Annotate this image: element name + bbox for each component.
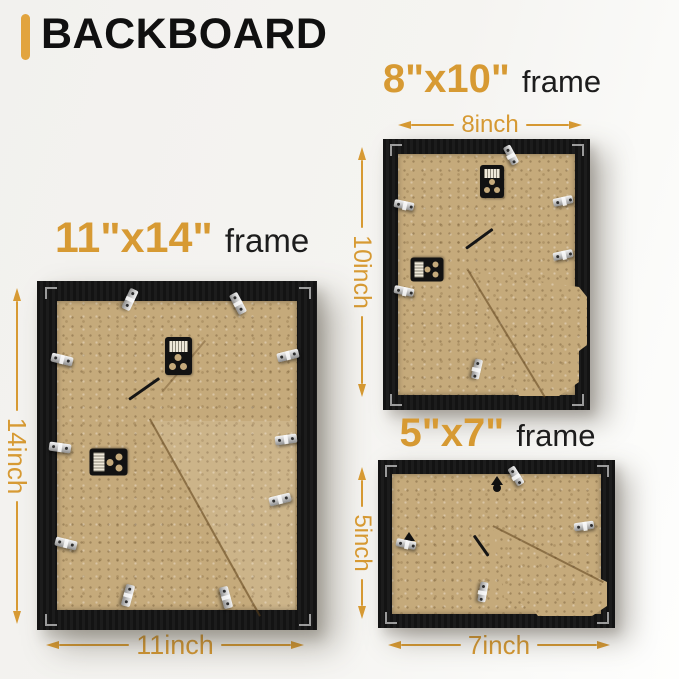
arrowhead-down-icon xyxy=(13,611,21,624)
arrowhead-right-icon xyxy=(291,641,304,649)
sawtooth-hanger-icon xyxy=(411,258,444,282)
arrowhead-left-icon xyxy=(46,641,59,649)
arrowhead-up-icon xyxy=(13,288,21,301)
dimension-width-8x10: 8inch xyxy=(398,111,582,139)
sawtooth-hanger-icon xyxy=(90,449,128,476)
arrowhead-right-icon xyxy=(569,121,582,129)
corner-bracket-icon xyxy=(45,287,57,299)
heading-11x14: 11"x14" frame xyxy=(32,216,332,261)
corner-bracket-icon xyxy=(572,144,584,156)
product-image: BACKBOARD 8"x10" frame 8inch 10inch 11"x… xyxy=(0,0,679,679)
frame-8x10 xyxy=(383,139,590,410)
dimension-height-8x10: 10inch xyxy=(348,147,376,397)
dimension-label: 8inch xyxy=(454,113,525,137)
arrowhead-right-icon xyxy=(597,641,610,649)
sawtooth-hanger-icon xyxy=(165,337,192,375)
title-accent-bar xyxy=(21,14,30,60)
corner-bracket-icon xyxy=(597,465,609,477)
frame-word-11x14: frame xyxy=(225,224,309,259)
metal-clip-icon xyxy=(48,442,71,454)
arrowhead-left-icon xyxy=(398,121,411,129)
heading-8x10: 8"x10" frame xyxy=(372,58,612,100)
frame-5x7 xyxy=(378,460,615,628)
arrowhead-up-icon xyxy=(358,147,366,160)
corner-bracket-icon xyxy=(299,614,311,626)
dimension-width-5x7: 7inch xyxy=(388,631,610,659)
arrowhead-down-icon xyxy=(358,384,366,397)
frame-word-5x7: frame xyxy=(516,420,595,453)
dimension-label: 14inch xyxy=(4,411,30,502)
dimension-label: 7inch xyxy=(461,632,537,658)
triangle-hanger-icon xyxy=(490,476,504,493)
arrowhead-left-icon xyxy=(388,641,401,649)
size-label-5x7: 5"x7" xyxy=(400,412,505,454)
arrowhead-up-icon xyxy=(358,467,366,480)
size-label-11x14: 11"x14" xyxy=(55,216,213,261)
dimension-width-11x14: 11inch xyxy=(46,631,304,659)
corner-bracket-icon xyxy=(390,144,402,156)
dimension-height-11x14: 14inch xyxy=(3,288,31,624)
corner-bracket-icon xyxy=(385,465,397,477)
frame-11x14 xyxy=(37,281,317,630)
heading-5x7: 5"x7" frame xyxy=(380,412,615,454)
frame-word-8x10: frame xyxy=(522,66,601,99)
dimension-height-5x7: 5inch xyxy=(348,467,376,619)
corner-bracket-icon xyxy=(572,394,584,406)
arrowhead-down-icon xyxy=(358,606,366,619)
dimension-label: 10inch xyxy=(350,228,375,316)
dimension-label: 11inch xyxy=(129,632,221,659)
corner-bracket-icon xyxy=(45,614,57,626)
sawtooth-hanger-icon xyxy=(480,165,504,198)
corner-bracket-icon xyxy=(385,612,397,624)
dimension-label: 5inch xyxy=(350,507,374,578)
corner-bracket-icon xyxy=(390,394,402,406)
page-title: BACKBOARD xyxy=(41,13,327,56)
size-label-8x10: 8"x10" xyxy=(383,58,510,100)
corner-bracket-icon xyxy=(299,287,311,299)
corner-bracket-icon xyxy=(597,612,609,624)
